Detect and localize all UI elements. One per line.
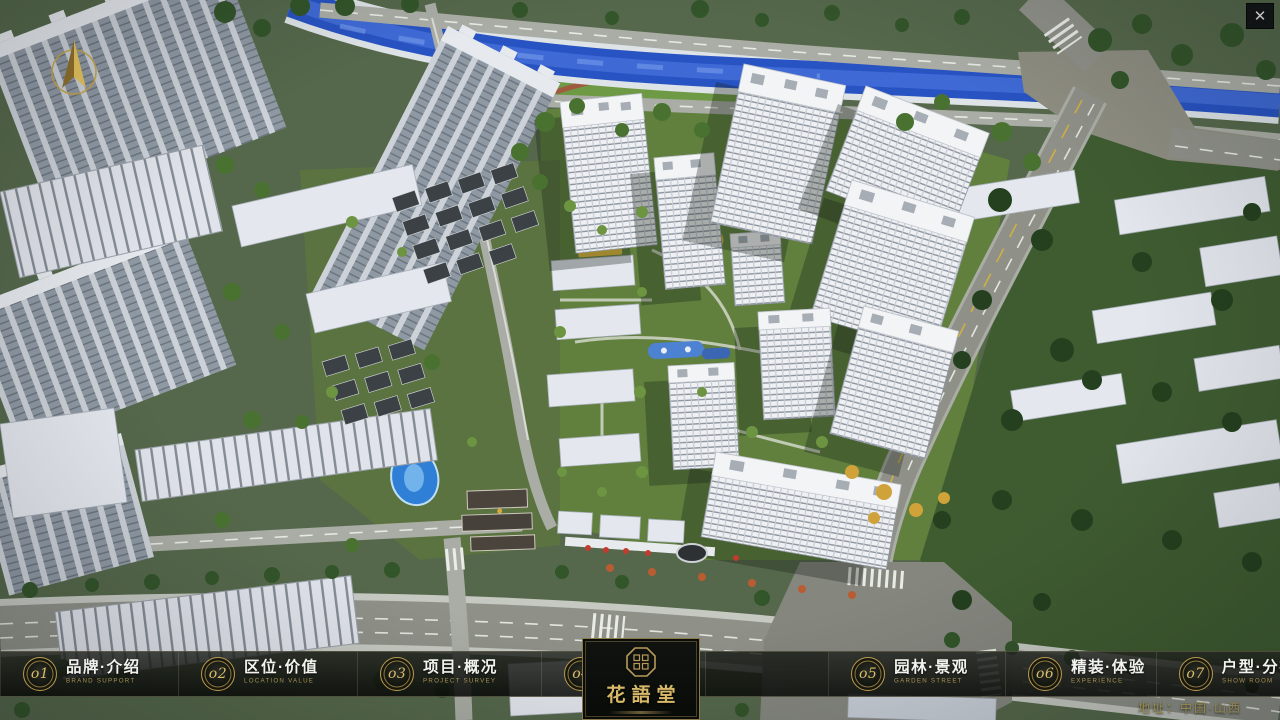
- logo-spacer: [706, 652, 828, 696]
- menu-item-garden[interactable]: o5 园林·景观GARDEN STREET: [828, 652, 1006, 696]
- menu-sublabel: GARDEN STREET: [894, 678, 963, 685]
- menu-item-brand[interactable]: o1 品牌·介绍BRAND SUPPORT: [0, 652, 179, 696]
- menu-sublabel: BRAND SUPPORT: [66, 678, 135, 685]
- menu-label: 品牌·介绍: [66, 660, 178, 676]
- menu-label: 项目·概况: [423, 660, 541, 676]
- menu-number-badge: o6: [1028, 657, 1062, 691]
- menu-label: 区位·价值: [244, 660, 357, 676]
- menu-item-location[interactable]: o2 区位·价值LOCATION VALUE: [179, 652, 358, 696]
- logo-subtitle-rule: [609, 711, 673, 714]
- temple-complex: [461, 489, 535, 551]
- logo-seal-icon: [625, 646, 657, 678]
- menu-item-project[interactable]: o3 项目·概况PROJECT SURVEY: [358, 652, 542, 696]
- close-icon: ✕: [1254, 9, 1267, 24]
- menu-number-badge: o3: [380, 657, 414, 691]
- menu-number-badge: o1: [23, 657, 57, 691]
- menu-sublabel: SHOW ROOM: [1222, 678, 1273, 685]
- project-logo-title: 花語堂: [600, 680, 681, 707]
- menu-sublabel: LOCATION VALUE: [244, 678, 314, 685]
- sales-presentation-screen: ✕ o1 品牌·介绍BRAND SUPPORT o2 区位·价值LOCATION…: [0, 0, 1280, 720]
- menu-item-floorplan[interactable]: o7 户型·分布SHOW ROOM: [1157, 652, 1280, 696]
- menu-number-badge: o2: [201, 657, 235, 691]
- menu-label: 精装·体验: [1071, 660, 1155, 676]
- close-button[interactable]: ✕: [1246, 3, 1274, 29]
- compass-north-icon: [44, 34, 104, 100]
- site-aerial-render: [0, 0, 1280, 720]
- menu-item-interior[interactable]: o6 精装·体验EXPERIENCE: [1006, 652, 1156, 696]
- menu-number-badge: o5: [851, 657, 885, 691]
- project-logo-plaque[interactable]: 花語堂: [582, 638, 700, 720]
- menu-group-right: o5 园林·景观GARDEN STREET o6 精装·体验EXPERIENCE…: [828, 652, 1280, 696]
- menu-label: 户型·分布: [1222, 660, 1280, 676]
- menu-sublabel: PROJECT SURVEY: [423, 678, 496, 685]
- menu-number-badge: o7: [1179, 657, 1213, 691]
- project-address: 地址：中国·山西: [1138, 699, 1242, 716]
- menu-sublabel: EXPERIENCE: [1071, 678, 1123, 685]
- menu-label: 园林·景观: [894, 660, 1005, 676]
